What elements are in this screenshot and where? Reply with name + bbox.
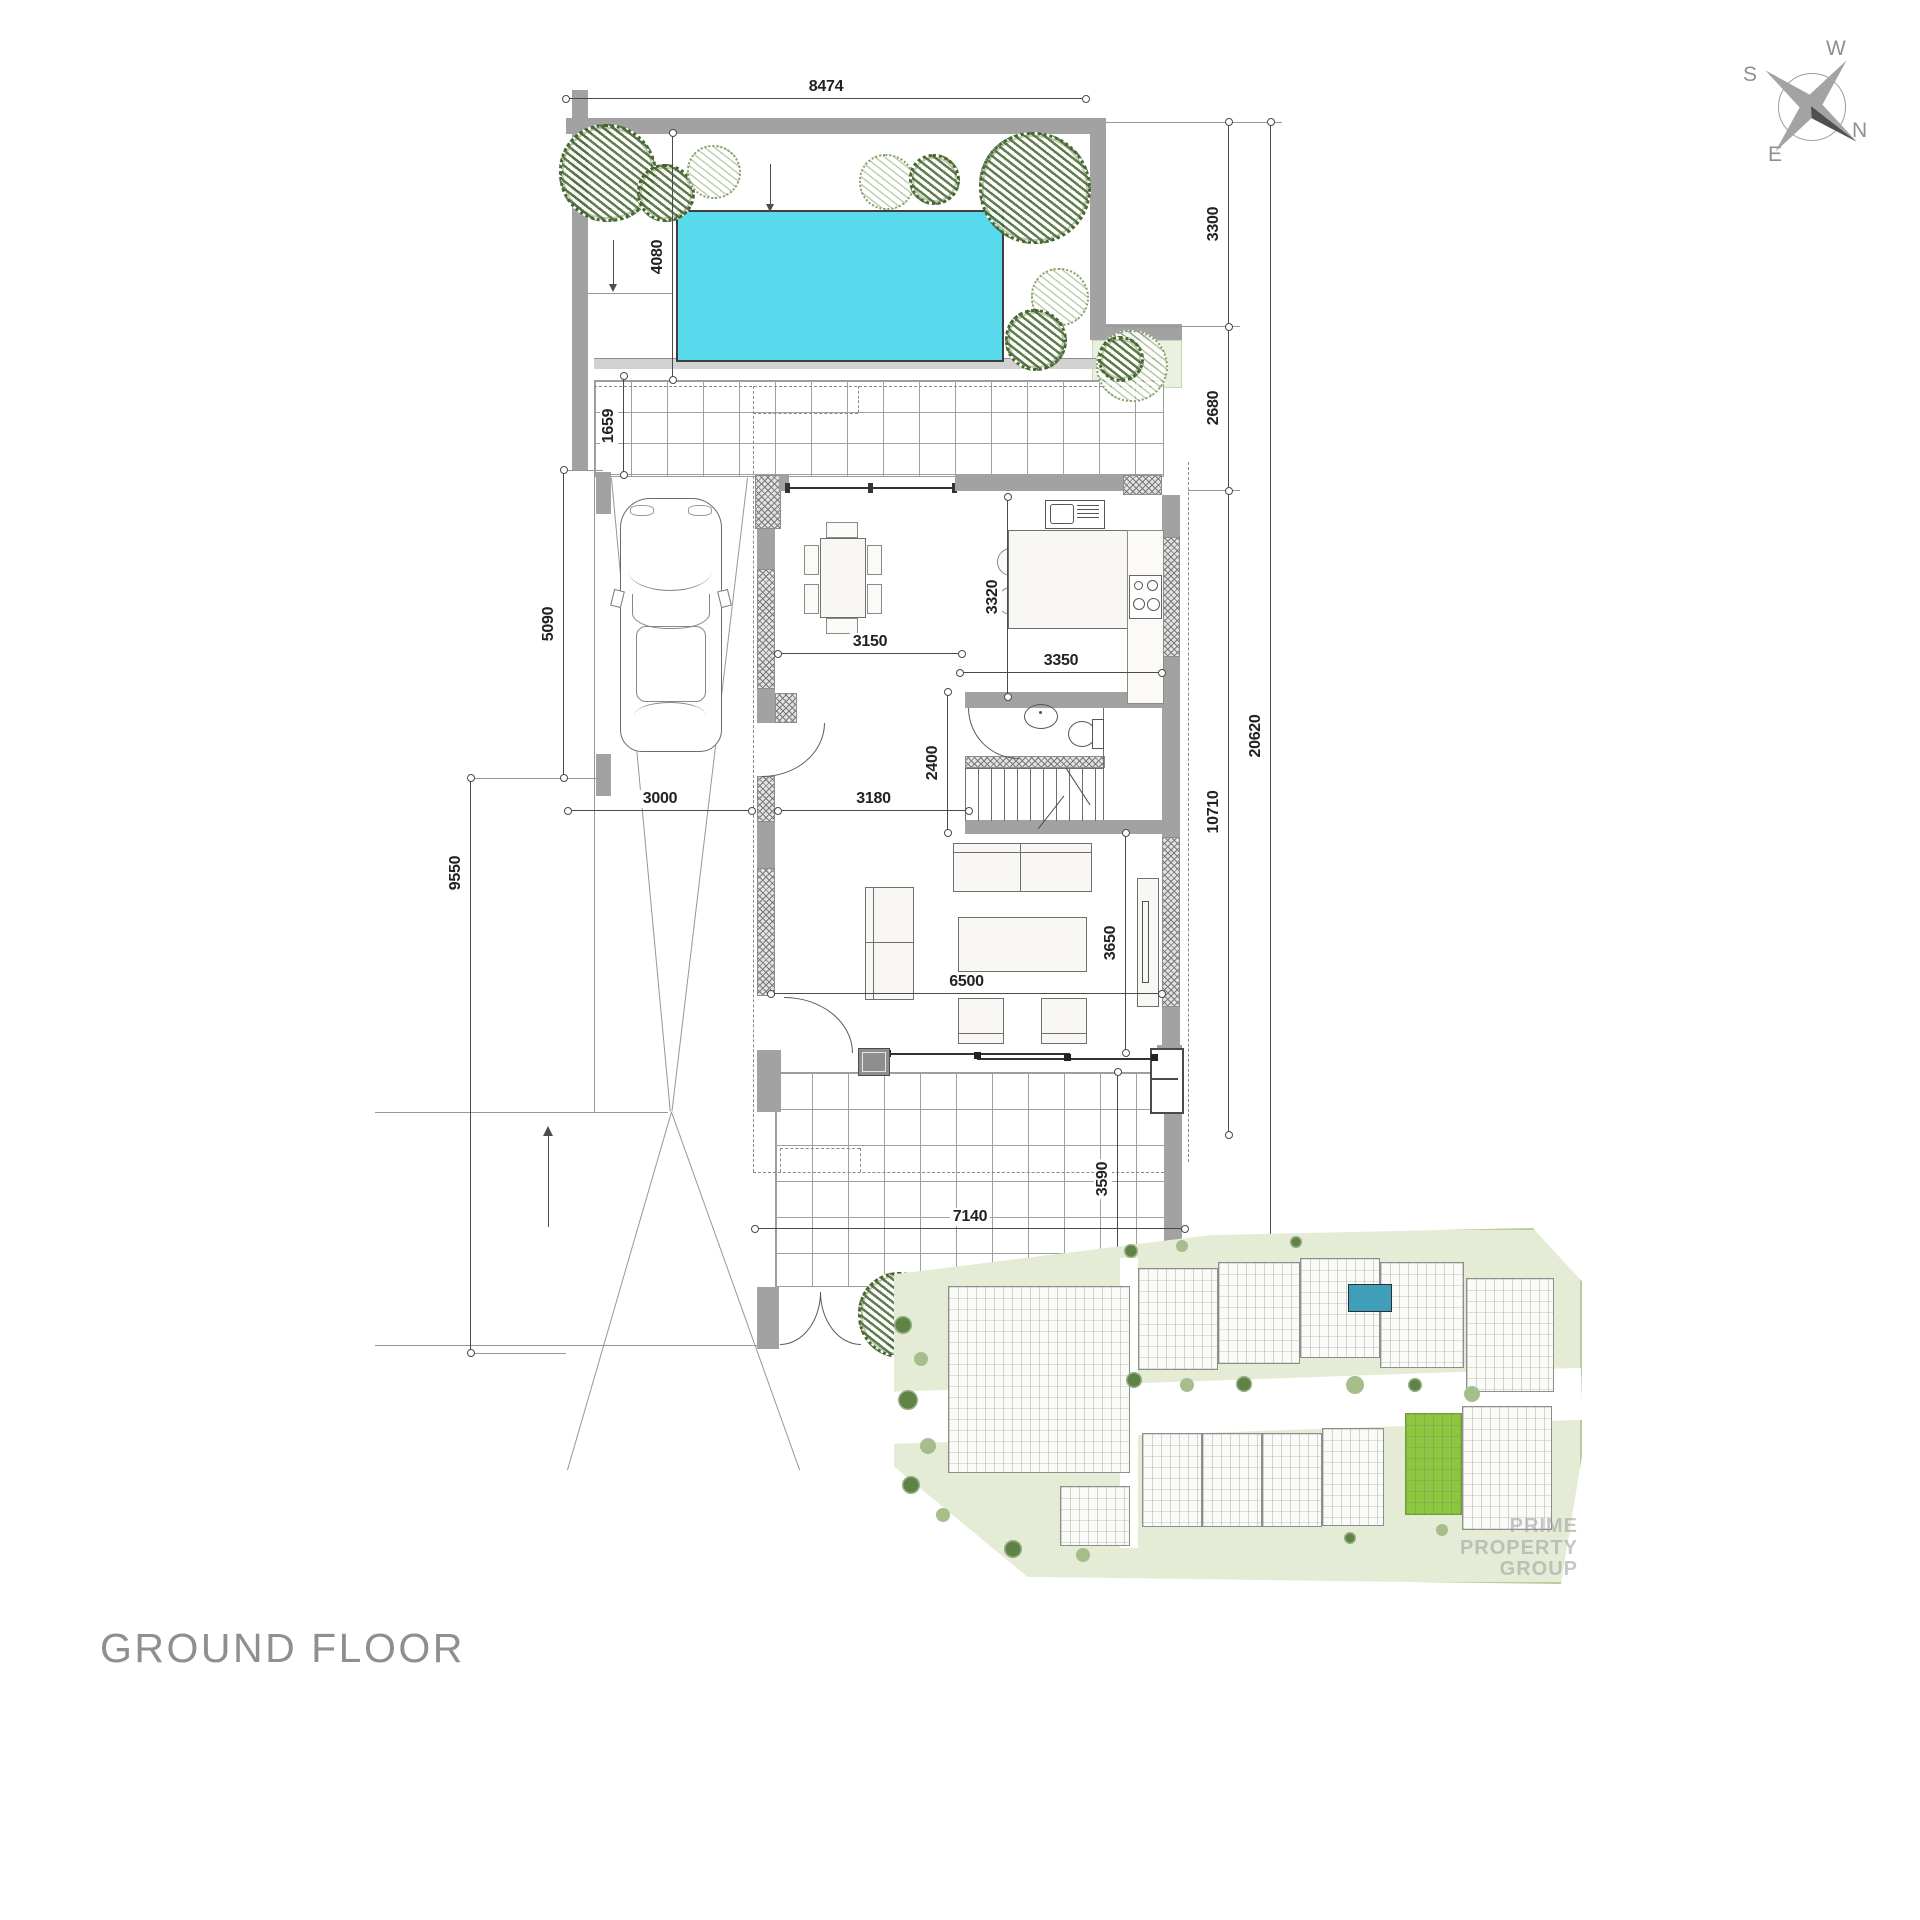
site-tree <box>914 1352 928 1366</box>
wall-stair-mid <box>965 756 1105 768</box>
planter-box <box>858 1048 890 1076</box>
ottoman <box>1041 998 1087 1044</box>
site-tree <box>1344 1532 1356 1544</box>
dining-chair <box>826 522 858 538</box>
burner-icon <box>1133 598 1145 610</box>
dimension-pool-depth: 4080 <box>672 133 673 380</box>
extension-line <box>470 778 600 779</box>
dimension-label: 6500 <box>946 973 986 991</box>
pool <box>676 210 1004 362</box>
site-tree <box>902 1476 920 1494</box>
dimension-label: 3590 <box>1094 1158 1112 1198</box>
car-windshield <box>632 594 710 629</box>
car-rear-window <box>634 702 706 729</box>
stair-door-arc <box>968 708 1019 759</box>
planter-inner <box>862 1052 886 1072</box>
dimension-east-total: 20620 <box>1270 122 1271 1350</box>
site-tree <box>1126 1372 1142 1388</box>
extension-line <box>470 1353 566 1354</box>
site-tree <box>1004 1540 1022 1558</box>
dimension-plot-top-width: 8474 <box>566 98 1086 99</box>
sliding-door-post-icon <box>1151 1054 1158 1061</box>
dimension-label: 5090 <box>540 604 558 644</box>
site-tree <box>894 1316 912 1334</box>
site-building <box>1262 1433 1322 1527</box>
burner-icon <box>1147 598 1160 611</box>
site-tree <box>1180 1378 1194 1392</box>
dimension-label: 1659 <box>600 405 618 445</box>
kitchen-island <box>1008 530 1129 629</box>
sink-drainer <box>1077 505 1099 521</box>
dimension-label: 3350 <box>1041 652 1081 670</box>
dining-chair <box>804 545 819 575</box>
dimension-living-depth: 3650 <box>1125 833 1126 1053</box>
dimension-kitchen-width: 3350 <box>960 672 1162 673</box>
dining-chair <box>804 584 819 614</box>
tree <box>1098 336 1144 382</box>
car <box>620 498 722 752</box>
watermark: PRIME PROPERTY GROUP <box>1400 1516 1578 1581</box>
ac-divider <box>1152 1078 1178 1080</box>
window-post-icon <box>785 483 790 493</box>
garden-step-line <box>588 293 672 294</box>
kitchen-sink <box>1045 500 1105 529</box>
site-tree <box>1290 1236 1302 1248</box>
dining-table <box>820 538 866 618</box>
ottoman <box>958 998 1004 1044</box>
window-post-icon <box>868 483 873 493</box>
living-terrace-door-arc <box>784 997 853 1053</box>
street-edge <box>375 1112 668 1113</box>
site-plan-inset: PRIME PROPERTY GROUP <box>880 1228 1582 1584</box>
dining-chair <box>867 584 882 614</box>
site-tree <box>1346 1376 1364 1394</box>
wc-sink <box>1024 704 1058 729</box>
terrace-north <box>594 380 1164 477</box>
site-tree <box>1176 1240 1188 1252</box>
extension-line <box>1106 326 1240 327</box>
dimension-dining-width: 3150 <box>778 653 962 654</box>
dimension-label: 3650 <box>1102 923 1120 963</box>
site-building <box>1380 1262 1464 1368</box>
arrow-head-icon <box>766 204 774 212</box>
wall-west <box>757 529 775 569</box>
wall-east <box>1162 495 1180 537</box>
site-building <box>1060 1486 1130 1546</box>
wall-west <box>757 689 775 723</box>
tv-unit <box>1137 878 1159 1007</box>
gate-door-arc <box>820 1292 861 1345</box>
dining-chair <box>867 545 882 575</box>
sofa-back-line <box>873 888 874 999</box>
sofa-back-line <box>954 852 1091 853</box>
pool-entry-arrow <box>770 164 771 206</box>
site-building <box>1138 1268 1218 1370</box>
site-building <box>1462 1406 1552 1530</box>
drive-direction-arrow <box>548 1135 549 1227</box>
site-building <box>1322 1428 1384 1526</box>
wall-west <box>757 822 775 868</box>
arrow-head-icon <box>543 1126 553 1136</box>
dimension-label: 3000 <box>640 790 680 808</box>
site-building-highlighted <box>1405 1413 1462 1515</box>
extension-line <box>1106 122 1282 123</box>
tree <box>979 132 1091 244</box>
site-building <box>948 1286 1130 1473</box>
site-tree <box>1124 1244 1138 1258</box>
dim-tick <box>1225 487 1233 495</box>
wall-house-north-b <box>955 475 1123 491</box>
extension-line <box>563 470 603 471</box>
dimension-label: 8474 <box>806 78 846 96</box>
roof-notch-dashed <box>860 1148 861 1172</box>
ottoman-line <box>1042 1033 1086 1034</box>
gate-pillar <box>757 1287 779 1349</box>
roof-overhang-dashed-north <box>594 386 1162 387</box>
car-hood-line <box>628 550 712 591</box>
roof-notch-dashed <box>780 1148 781 1172</box>
wall-east-upper <box>1090 118 1106 340</box>
site-tree <box>1076 1548 1090 1562</box>
site-building <box>1142 1433 1202 1527</box>
tree <box>687 145 741 199</box>
wall-west-hatch <box>757 868 775 996</box>
wall-west-hatch <box>757 569 775 689</box>
carport-post <box>596 754 611 796</box>
site-building <box>1466 1278 1554 1392</box>
tv-screen <box>1142 901 1149 983</box>
car-headlight-icon <box>688 505 712 516</box>
dimension-label: 2400 <box>924 742 942 782</box>
wall-west-cap <box>757 1050 781 1112</box>
dimension-kitchen-depth: 3320 <box>1007 497 1008 697</box>
dim-tick <box>1225 323 1233 331</box>
wall-house-ne-corner <box>1123 475 1162 495</box>
dimension-label: 3300 <box>1205 204 1223 244</box>
dimension-label: 4080 <box>649 236 667 276</box>
site-tree <box>898 1390 918 1410</box>
arrow-head-icon <box>609 284 617 292</box>
wall-east-hatch <box>1162 837 1180 1007</box>
wall-house-nw-corner <box>755 475 781 529</box>
garden-step-arrow <box>613 240 614 286</box>
wall-east <box>1162 1007 1180 1047</box>
dimension-carport-width: 3000 <box>568 810 752 811</box>
burner-icon <box>1147 580 1158 591</box>
wc-sink-drain-icon <box>1039 711 1042 714</box>
dimension-label: 20620 <box>1247 712 1265 761</box>
dimension-terrace-north-depth: 1659 <box>623 376 624 475</box>
dimension-driveway-length: 9550 <box>470 778 471 1353</box>
dimension-stair-hall-depth: 2400 <box>947 692 948 833</box>
dimension-living-width: 6500 <box>771 993 1162 994</box>
wall-west-hatch <box>757 776 775 822</box>
gate-door-arc <box>780 1292 821 1345</box>
sliding-door-post-icon <box>974 1052 981 1059</box>
site-tree <box>1236 1376 1252 1392</box>
property-line-east-dashed <box>1188 462 1189 1162</box>
armchair-sofa <box>865 887 914 1000</box>
stair-void-shaft <box>1103 708 1163 820</box>
wc-toilet-tank <box>1092 719 1104 749</box>
dimension-label: 3150 <box>850 633 890 651</box>
tree <box>859 154 915 210</box>
plan-canvas: W S N E <box>0 0 1920 1920</box>
tree <box>1005 309 1067 371</box>
dimension-carport-depth: 5090 <box>563 470 564 778</box>
dimension-label: 7140 <box>950 1208 990 1226</box>
sliding-door-post-icon <box>1064 1054 1071 1061</box>
dimension-east-chain: 3300 2680 10710 <box>1228 122 1229 1135</box>
coffee-table <box>958 917 1087 972</box>
dimension-label: 9550 <box>447 853 465 893</box>
roof-notch-dashed <box>753 413 858 414</box>
site-tree <box>936 1508 950 1522</box>
wall-east <box>1162 657 1180 837</box>
site-pool <box>1348 1284 1392 1312</box>
sightline <box>567 1112 672 1470</box>
dimension-hall-width: 3180 <box>778 810 969 811</box>
dimension-label: 3180 <box>853 790 893 808</box>
roof-notch-dashed <box>780 1148 860 1149</box>
site-tree <box>1464 1386 1480 1402</box>
site-tree <box>1408 1378 1422 1392</box>
car-headlight-icon <box>630 505 654 516</box>
ottoman-line <box>959 1033 1003 1034</box>
site-tree <box>920 1438 936 1454</box>
sink-bowl <box>1050 504 1074 524</box>
wall-stub-entry <box>775 693 797 723</box>
wall-east-hatch <box>1162 537 1180 657</box>
cooktop <box>1129 575 1162 619</box>
burner-icon <box>1134 581 1143 590</box>
entrance-door-arc <box>762 723 825 777</box>
street-edge <box>375 1345 757 1346</box>
boundary-fence-line <box>594 470 595 1112</box>
dimension-label: 2680 <box>1205 388 1223 428</box>
car-roof <box>636 626 706 702</box>
roof-overhang-dashed-west <box>753 386 754 1172</box>
carport-post <box>596 472 611 514</box>
dimension-label: 3320 <box>984 577 1002 617</box>
floor-title: GROUND FLOOR <box>100 1628 465 1669</box>
tree <box>909 154 960 205</box>
wall-stair-south <box>965 820 1162 834</box>
dimension-label: 10710 <box>1205 788 1223 837</box>
sofa <box>953 843 1092 892</box>
roof-notch-dashed <box>858 386 859 413</box>
site-building <box>1202 1433 1262 1527</box>
dining-chair <box>826 618 858 634</box>
site-building <box>1218 1262 1300 1364</box>
